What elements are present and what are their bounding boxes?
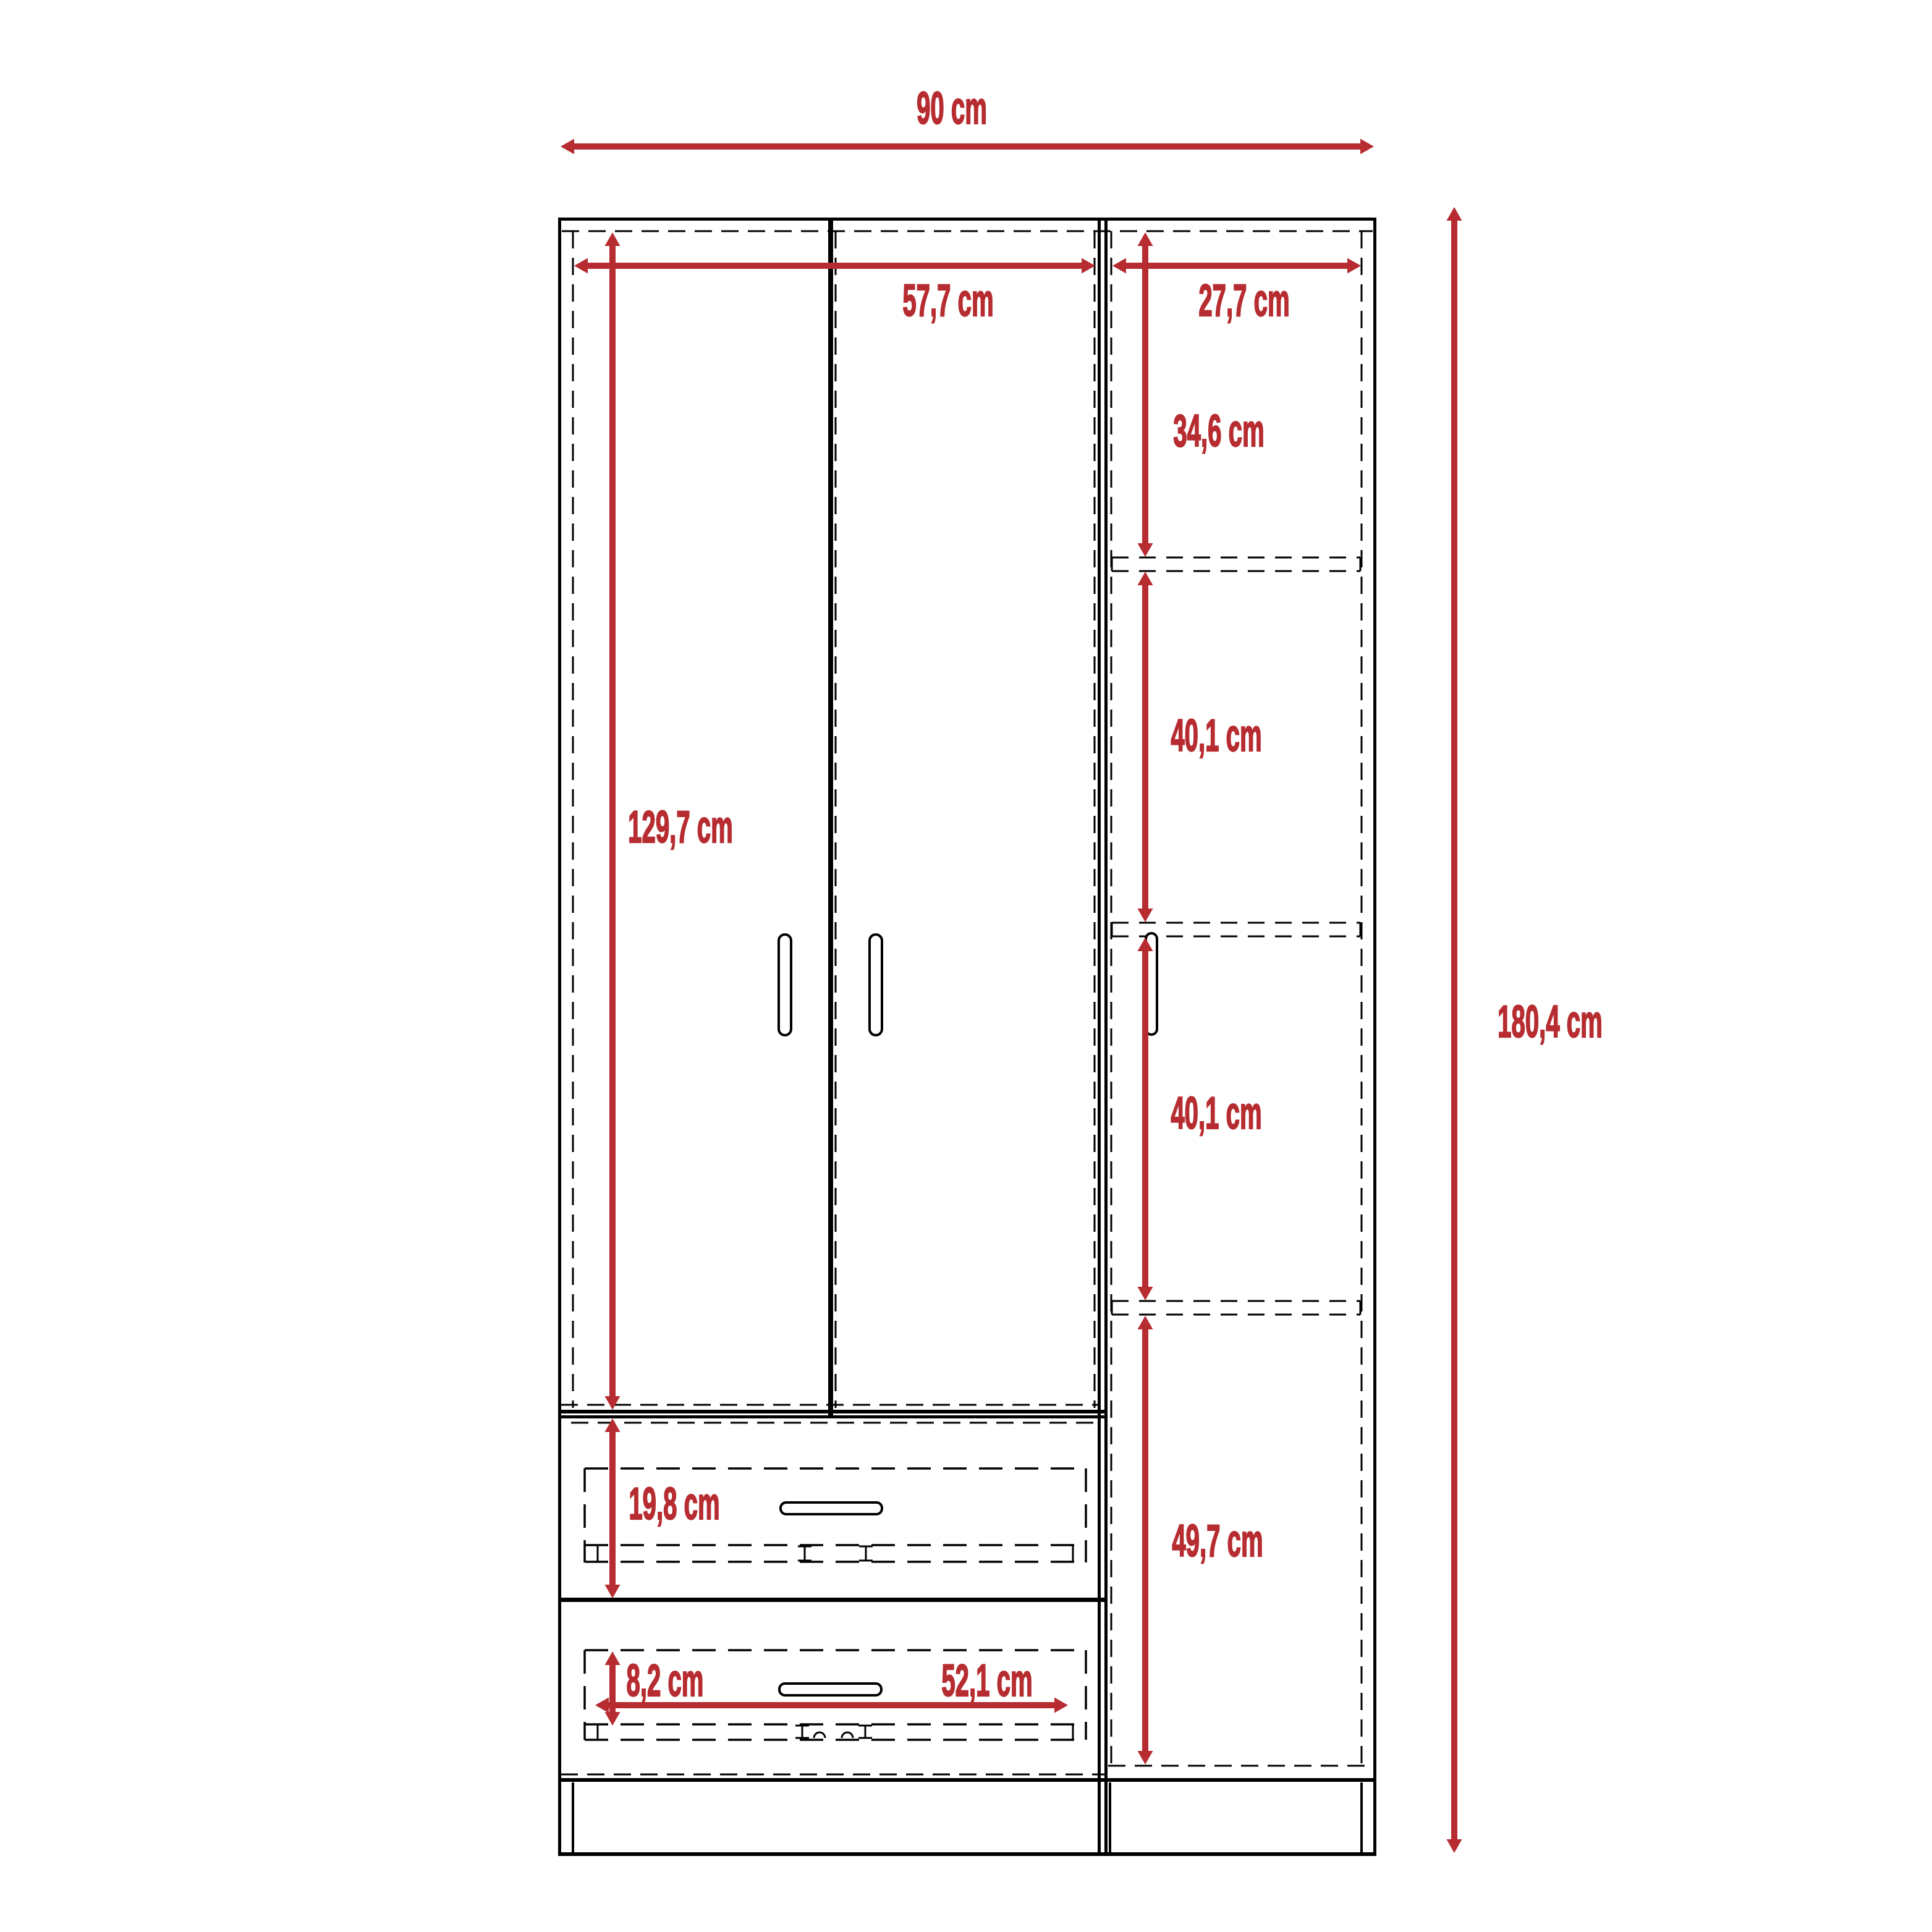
svg-text:180,4 cm: 180,4 cm <box>1498 998 1603 1048</box>
svg-text:27,7 cm: 27,7 cm <box>1198 276 1289 326</box>
svg-text:8,2 cm: 8,2 cm <box>627 1656 704 1706</box>
svg-text:57,7 cm: 57,7 cm <box>902 276 993 326</box>
svg-text:90 cm: 90 cm <box>917 84 987 134</box>
svg-text:49,7 cm: 49,7 cm <box>1172 1517 1263 1567</box>
svg-text:40,1 cm: 40,1 cm <box>1171 1089 1261 1139</box>
svg-text:129,7 cm: 129,7 cm <box>628 803 733 853</box>
svg-text:34,6 cm: 34,6 cm <box>1173 407 1264 457</box>
svg-text:52,1 cm: 52,1 cm <box>941 1656 1032 1706</box>
svg-text:40,1 cm: 40,1 cm <box>1171 711 1261 761</box>
svg-text:19,8 cm: 19,8 cm <box>629 1480 719 1530</box>
